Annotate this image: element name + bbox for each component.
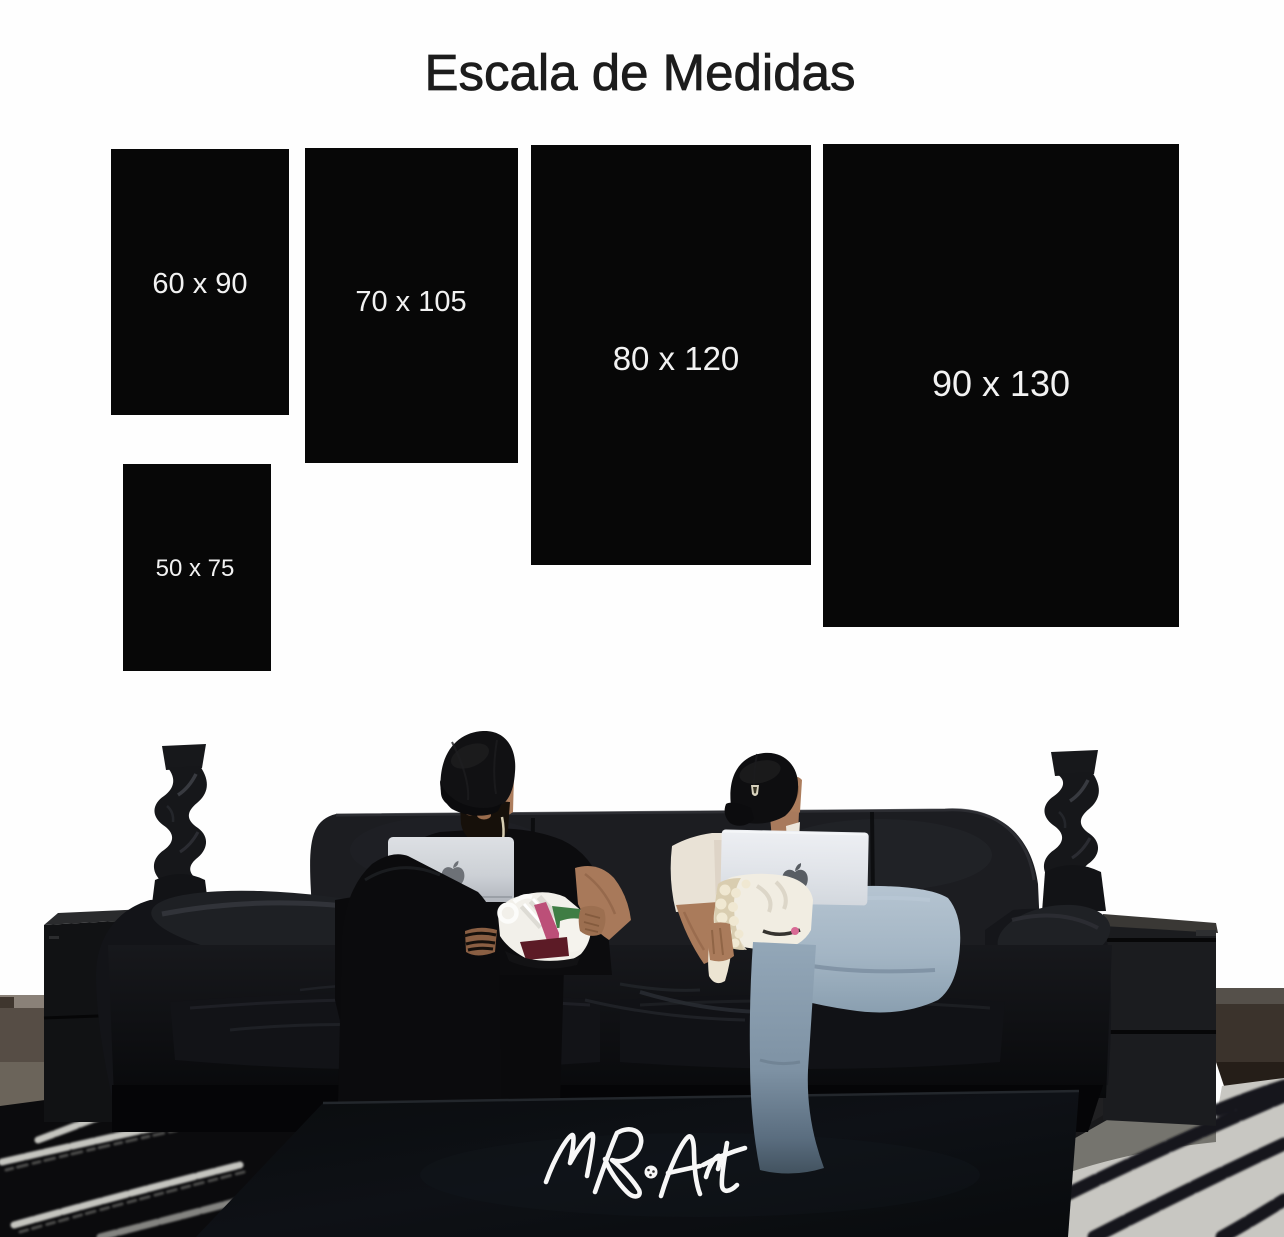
svg-text:60 x 90: 60 x 90	[152, 268, 247, 300]
svg-text:90 x 130: 90 x 130	[932, 363, 1070, 404]
svg-text:Escala de Medidas: Escala de Medidas	[425, 44, 856, 101]
svg-text:50 x 75: 50 x 75	[156, 555, 235, 582]
svg-text:80 x 120: 80 x 120	[613, 340, 740, 377]
svg-text:70 x 105: 70 x 105	[355, 286, 466, 318]
